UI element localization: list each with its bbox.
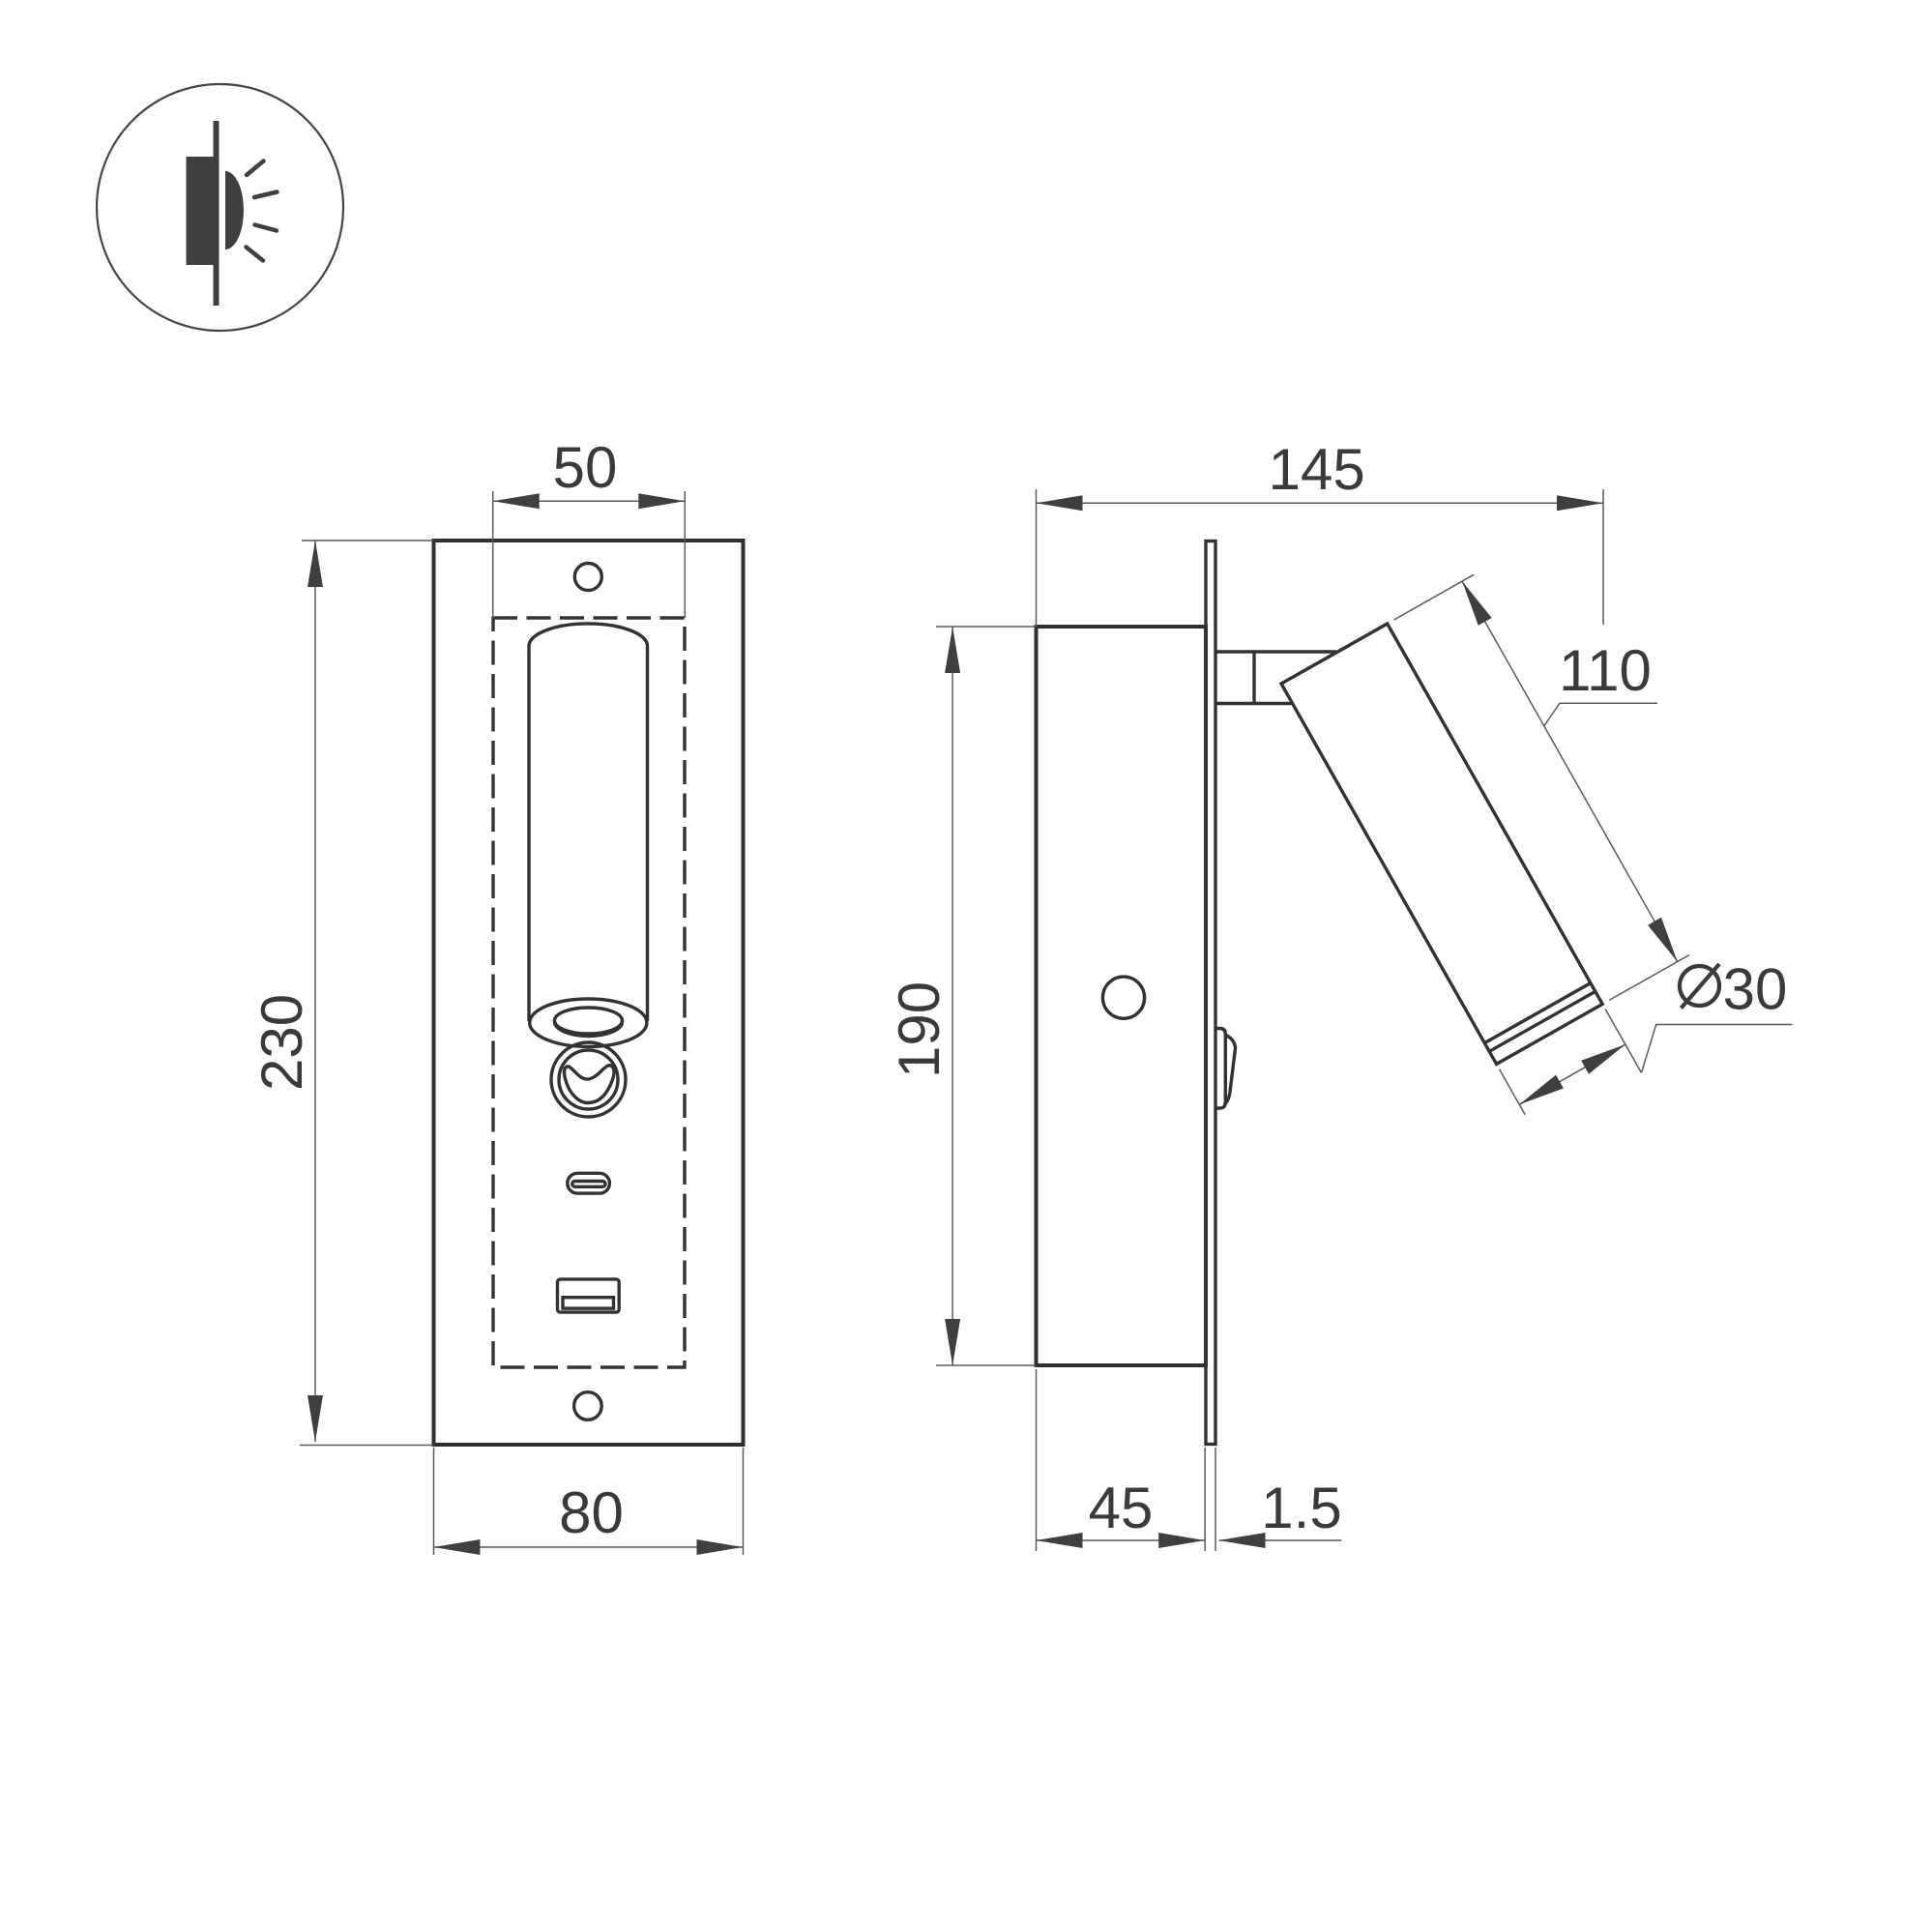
svg-text:80: 80 [559, 1480, 624, 1545]
svg-text:50: 50 [553, 435, 618, 500]
svg-text:110: 110 [1559, 638, 1652, 703]
svg-text:230: 230 [249, 994, 314, 1091]
svg-text:1.5: 1.5 [1261, 1476, 1341, 1540]
svg-text:45: 45 [1089, 1476, 1154, 1540]
svg-text:145: 145 [1269, 437, 1365, 502]
svg-text:30: 30 [1723, 957, 1788, 1022]
svg-text:190: 190 [887, 981, 951, 1078]
